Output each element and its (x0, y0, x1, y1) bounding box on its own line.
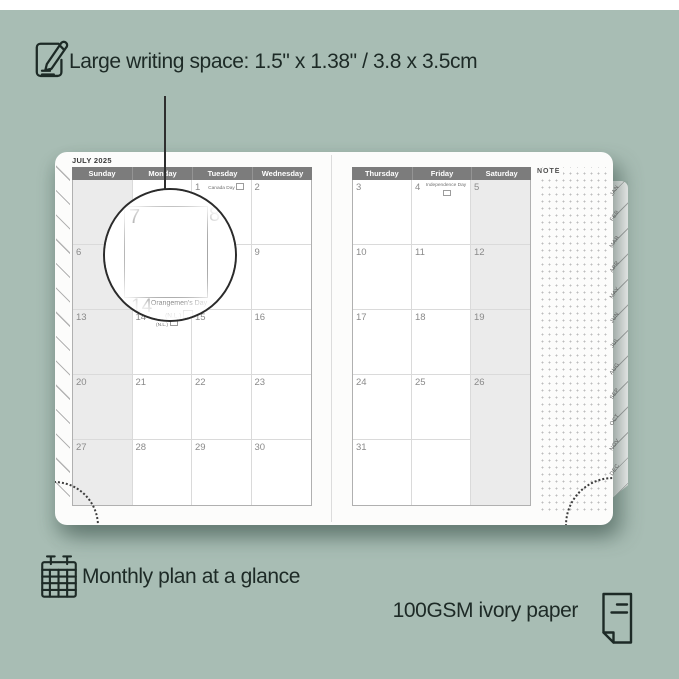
calendar-grid-right: ThursdayFridaySaturday34Independence Day… (352, 167, 531, 506)
calendar-cell: 3 (353, 180, 412, 245)
calendar-cell: 23 (252, 375, 312, 440)
calendar-cell: 31 (353, 440, 412, 505)
planner-product-image: Large writing space: 1.5" x 1.38" / 3.8 … (0, 0, 679, 679)
day-header-row: SundayMondayTuesdayWednesday (72, 167, 312, 180)
feature-monthly-plan-text: Monthly plan at a glance (82, 565, 300, 589)
calendar-cell: 11 (412, 245, 471, 310)
day-number: 16 (255, 312, 266, 323)
calendar-cell: 29 (192, 440, 252, 505)
day-number: 30 (255, 442, 266, 453)
feature-paper-text: 100GSM ivory paper (393, 599, 578, 623)
day-number: 27 (76, 442, 87, 453)
calendar-cell: 13 (73, 310, 133, 375)
day-number: 18 (415, 312, 426, 323)
day-number: 12 (474, 247, 485, 258)
day-number: 9 (255, 247, 260, 258)
calendar-cell: 20 (73, 375, 133, 440)
note-label: NOTE (537, 168, 563, 176)
holiday-label: Independence Day (425, 183, 467, 200)
day-header: Thursday (352, 167, 412, 180)
day-number: 21 (136, 377, 147, 388)
feature-writing-space-text: Large writing space: 1.5" x 1.38" / 3.8 … (69, 50, 477, 74)
day-header-row: ThursdayFridaySaturday (352, 167, 531, 180)
day-header: Sunday (72, 167, 132, 180)
holiday-label: Canada Day (205, 183, 248, 193)
day-header: Friday (412, 167, 472, 180)
calendar-cell: 18 (412, 310, 471, 375)
planner-spread: JULY 2025 SundayMondayTuesdayWednesday1C… (55, 152, 613, 525)
calendar-cell: 25 (412, 375, 471, 440)
calendar-cell: 15 (192, 310, 252, 375)
calendar-cell: 9 (252, 245, 312, 310)
day-number: 29 (195, 442, 206, 453)
calendar-cell: 19 (471, 310, 530, 375)
day-number: 19 (474, 312, 485, 323)
calendar-cell: 4Independence Day (412, 180, 471, 245)
day-number: 13 (76, 312, 87, 323)
calendar-cell: 22 (192, 375, 252, 440)
paper-icon (598, 591, 634, 646)
day-number: 31 (356, 442, 367, 453)
day-number: 17 (356, 312, 367, 323)
day-header: Saturday (471, 167, 531, 180)
calendar-cell: 5 (471, 180, 530, 245)
calendar-cell: 21 (133, 375, 193, 440)
calendar-cell (412, 440, 471, 505)
calendar-cell: 30 (252, 440, 312, 505)
day-number: 20 (76, 377, 87, 388)
magnifier-glow (105, 190, 235, 320)
calendar-cell: 16 (252, 310, 312, 375)
page-edge-hatching (56, 160, 70, 506)
calendar-body: 34Independence Day510111217181924252631 (352, 180, 531, 506)
month-title: JULY 2025 (72, 156, 112, 165)
magnifier-circle: 7 8 14 Orangemen's Day (N.L.) (103, 188, 237, 322)
day-number: 25 (415, 377, 426, 388)
day-number: 3 (356, 182, 361, 193)
day-number: 1 (195, 182, 200, 193)
day-header: Tuesday (192, 167, 252, 180)
note-pencil-icon (33, 31, 69, 83)
day-number: 28 (136, 442, 147, 453)
calendar-cell: 17 (353, 310, 412, 375)
day-header: Monday (132, 167, 192, 180)
note-dot-grid (537, 167, 611, 513)
day-number: 5 (474, 182, 479, 193)
calendar-cell: 26 (471, 375, 530, 440)
day-number: 24 (356, 377, 367, 388)
day-number: 26 (474, 377, 485, 388)
calendar-cell: 12 (471, 245, 530, 310)
page-spine (331, 155, 332, 522)
day-number: 6 (76, 247, 81, 258)
calendar-cell: 28 (133, 440, 193, 505)
calendar-cell (471, 440, 530, 505)
day-number: 4 (415, 182, 420, 193)
day-number: 23 (255, 377, 266, 388)
calendar-cell: 24 (353, 375, 412, 440)
magnifier-pointer-line (164, 96, 166, 190)
day-number: 2 (255, 182, 260, 193)
flag-icon (443, 190, 451, 197)
flag-icon (236, 183, 244, 190)
calendar-cell: 2 (252, 180, 312, 245)
day-number: 11 (415, 247, 425, 258)
calendar-icon (36, 554, 82, 600)
calendar-cell: 10 (353, 245, 412, 310)
day-header: Wednesday (252, 167, 312, 180)
day-number: 22 (195, 377, 206, 388)
day-number: 10 (356, 247, 367, 258)
